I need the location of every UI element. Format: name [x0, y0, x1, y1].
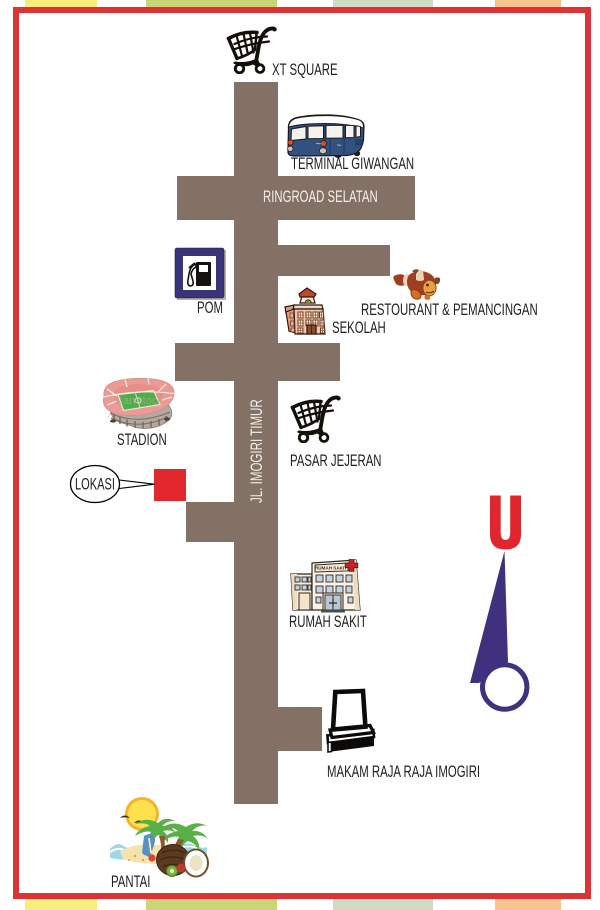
- svg-text:LOKASI: LOKASI: [75, 476, 115, 494]
- svg-text:CanStock: CanStock: [115, 395, 163, 407]
- svg-text:RUMAH SAKIT: RUMAH SAKIT: [315, 566, 347, 571]
